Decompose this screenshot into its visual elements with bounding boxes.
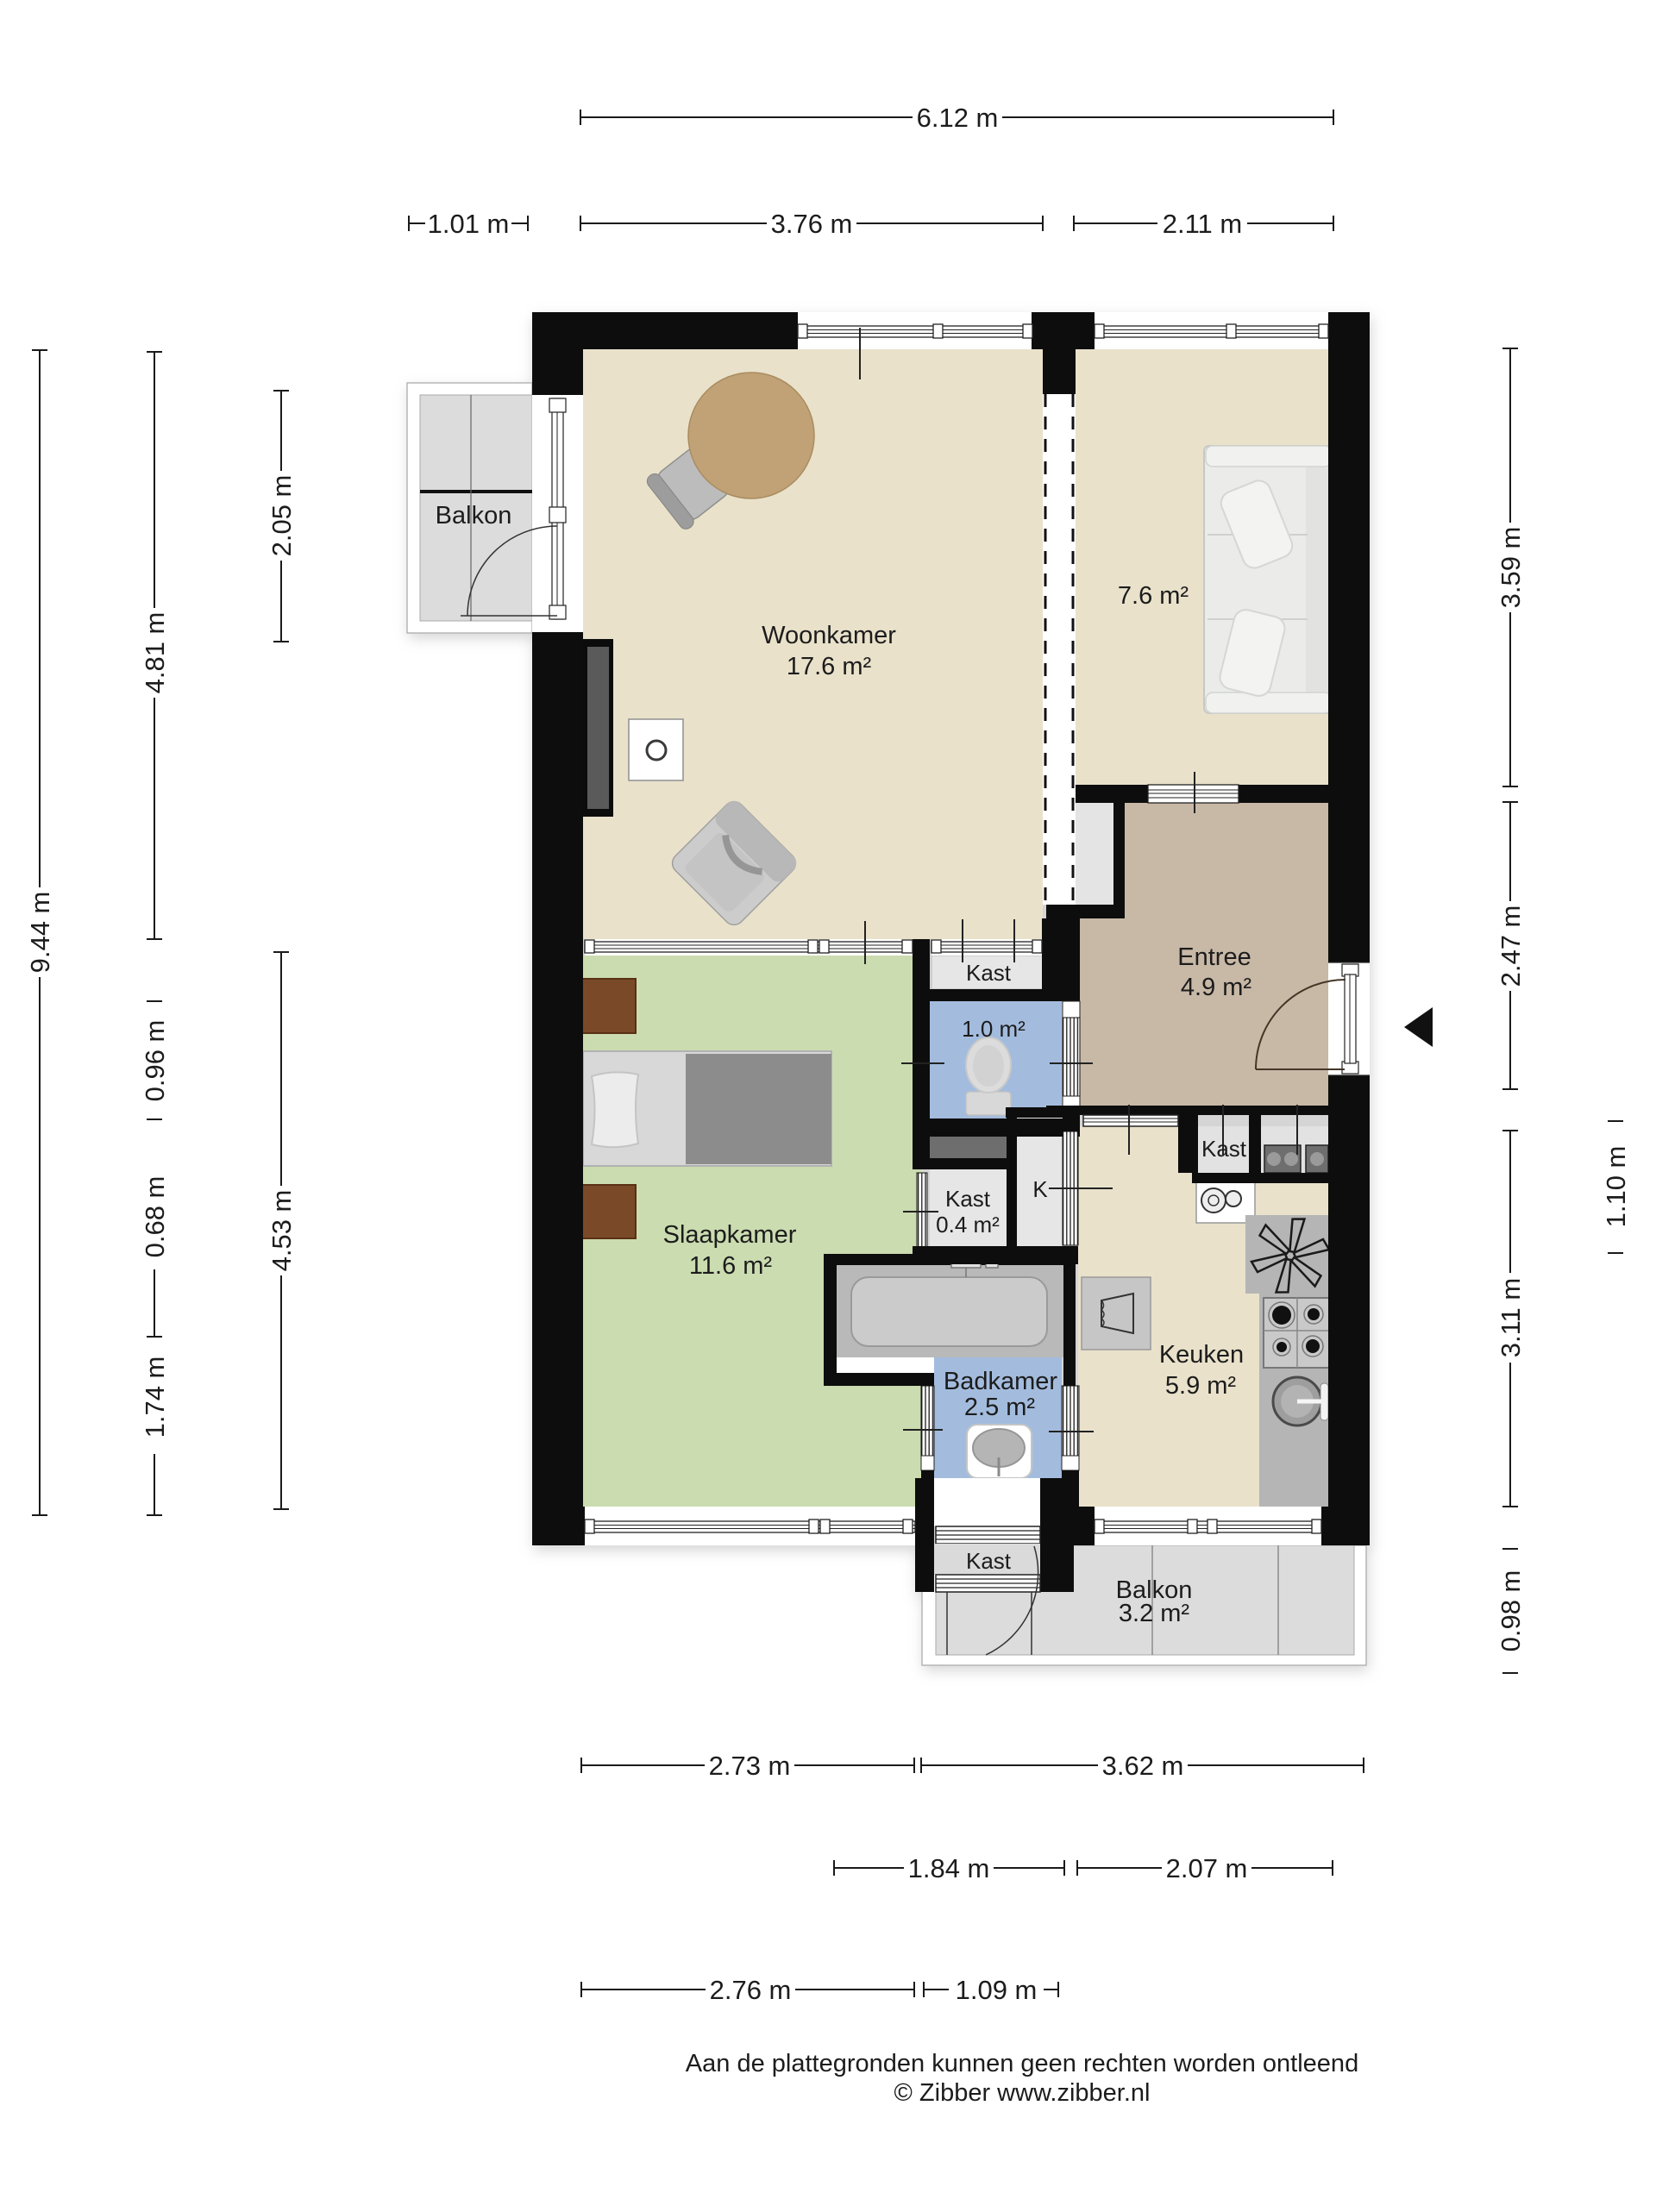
svg-text:K: K [1032, 1176, 1048, 1202]
svg-text:6.12 m: 6.12 m [917, 103, 999, 133]
svg-text:3.59 m: 3.59 m [1496, 527, 1526, 609]
svg-text:1.74 m: 1.74 m [140, 1357, 170, 1438]
svg-text:Keuken: Keuken [1159, 1341, 1244, 1369]
svg-text:Badkamer: Badkamer [944, 1368, 1058, 1395]
svg-text:4.9 m²: 4.9 m² [1181, 974, 1252, 1001]
svg-text:© Zibber www.zibber.nl: © Zibber www.zibber.nl [894, 2079, 1151, 2107]
svg-text:3.11 m: 3.11 m [1496, 1278, 1526, 1357]
svg-text:2.73 m: 2.73 m [709, 1751, 791, 1781]
svg-text:1.0 m²: 1.0 m² [962, 1016, 1026, 1042]
svg-text:Kast: Kast [945, 1186, 991, 1212]
svg-text:Woonkamer: Woonkamer [762, 622, 896, 649]
svg-text:2.07 m: 2.07 m [1166, 1853, 1248, 1883]
svg-text:9.44 m: 9.44 m [25, 892, 55, 974]
svg-text:Balkon: Balkon [436, 502, 512, 530]
svg-text:2.05 m: 2.05 m [267, 475, 297, 557]
svg-text:17.6 m²: 17.6 m² [787, 653, 872, 680]
svg-text:2.47 m: 2.47 m [1496, 905, 1526, 987]
svg-text:1.10 m: 1.10 m [1601, 1146, 1631, 1228]
svg-text:1.01 m: 1.01 m [428, 209, 510, 239]
svg-text:7.6 m²: 7.6 m² [1118, 582, 1189, 610]
svg-text:Aan de plattegronden kunnen ge: Aan de plattegronden kunnen geen rechten… [686, 2050, 1358, 2077]
svg-text:2.11 m: 2.11 m [1163, 209, 1242, 239]
svg-text:0.4 m²: 0.4 m² [936, 1212, 1000, 1238]
svg-text:4.81 m: 4.81 m [140, 612, 170, 694]
svg-text:3.2 m²: 3.2 m² [1119, 1600, 1190, 1627]
svg-text:11.6 m²: 11.6 m² [689, 1252, 773, 1280]
svg-text:Kast: Kast [1201, 1136, 1247, 1162]
svg-text:Kast: Kast [966, 1548, 1012, 1574]
svg-text:0.68 m: 0.68 m [140, 1176, 170, 1258]
svg-text:5.9 m²: 5.9 m² [1165, 1372, 1237, 1400]
svg-text:1.84 m: 1.84 m [908, 1853, 990, 1883]
svg-text:1.09 m: 1.09 m [956, 1975, 1038, 2005]
svg-text:Entree: Entree [1177, 943, 1251, 971]
svg-text:2.5 m²: 2.5 m² [964, 1394, 1036, 1421]
svg-text:2.76 m: 2.76 m [710, 1975, 792, 2005]
svg-text:3.76 m: 3.76 m [771, 209, 853, 239]
svg-text:3.62 m: 3.62 m [1102, 1751, 1184, 1781]
svg-text:0.98 m: 0.98 m [1496, 1570, 1526, 1652]
svg-text:0.96 m: 0.96 m [140, 1020, 170, 1102]
svg-text:Slaapkamer: Slaapkamer [663, 1221, 797, 1249]
svg-text:Kast: Kast [966, 960, 1012, 986]
svg-text:4.53 m: 4.53 m [267, 1190, 297, 1272]
